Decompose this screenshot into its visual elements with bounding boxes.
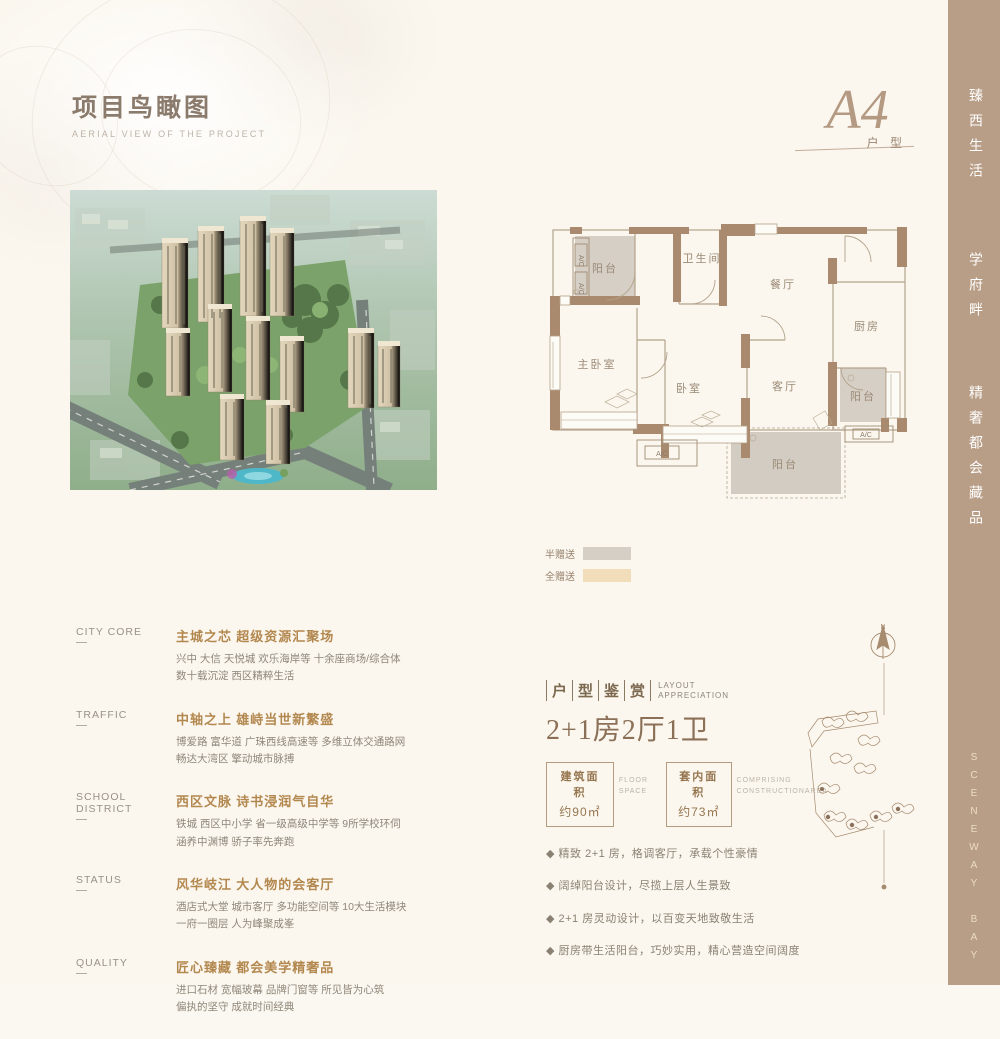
unit-type-emblem: A4 户 型: [795, 82, 920, 167]
room-label-bedroom: 卧室: [676, 381, 702, 395]
room-label-balcony-bottom: 阳台: [772, 457, 798, 471]
info-line: 数十载沉淀 西区精粹生活: [176, 668, 446, 685]
unit-code: A4: [795, 82, 920, 138]
floor-plan: 阳台 卫生间 餐厅 厨房 主卧室 卧室 客厅 阳台 阳台 A/C A/C A/C…: [545, 222, 913, 510]
room-label-dining: 餐厅: [770, 277, 796, 291]
layout-title-char: 型: [572, 680, 598, 701]
sidebar-slogan-3: 精奢都会藏品: [964, 385, 984, 535]
info-line: 进口石材 宽幅玻幕 品牌门窗等 所见皆为心筑: [176, 982, 446, 999]
room-label-living: 客厅: [772, 379, 798, 393]
info-line: 偏执的坚守 成就时间经典: [176, 999, 446, 1016]
area-label: 建筑面积: [556, 768, 604, 800]
ac-label-2: A/C: [577, 283, 584, 295]
layout-title-cn: 户 型 鉴 赏: [546, 680, 651, 701]
layout-title-char: 鉴: [598, 680, 624, 701]
ac-label-1: A/C: [577, 255, 584, 267]
area-label: 套内面积: [676, 768, 722, 800]
info-label: QUALITY: [76, 957, 128, 969]
sidebar-brand-name: SCENEWAY BAY: [969, 752, 980, 968]
site-plan-drawing: N: [788, 615, 933, 910]
area-value: 约73㎡: [676, 803, 722, 820]
info-line: 博爱路 富华道 广珠西线高速等 多维立体交通路网: [176, 734, 446, 751]
legend-label-half: 半赠送: [545, 546, 575, 561]
legend-swatch-full: [583, 569, 631, 582]
room-label-master-bedroom: 主卧室: [578, 357, 617, 371]
info-label: CITY CORE: [76, 626, 142, 638]
info-row-school: SCHOOL DISTRICT 西区文脉 诗书浸润气自华 铁城 西区中小学 省一…: [76, 791, 446, 851]
legend-item-half: 半赠送: [545, 546, 631, 561]
info-label: TRAFFIC: [76, 709, 127, 721]
plan-legend: 半赠送 全赠送: [545, 546, 631, 590]
sidebar-slogan-1: 臻西生活: [964, 88, 984, 188]
brochure-page: 项目鸟瞰图 AERIAL VIEW OF THE PROJECT A4 户 型: [0, 0, 1000, 985]
room-label-balcony-top: 阳台: [592, 261, 618, 275]
info-label: SCHOOL DISTRICT: [76, 791, 132, 815]
selling-points-list: CITY CORE 主城之芯 超级资源汇聚场 兴中 大信 天悦城 欢乐海岸等 十…: [76, 626, 446, 1039]
unit-code-label: 户 型: [867, 134, 906, 151]
info-line: 涵养中渊博 骄子率先奔跑: [176, 834, 446, 851]
page-title: 项目鸟瞰图: [72, 88, 266, 124]
info-heading: 西区文脉 诗书浸润气自华: [176, 791, 446, 810]
area-value: 约90㎡: [556, 803, 604, 820]
feature-bullet: ◆ 精致 2+1 房，格调客厅，承载个性豪情: [546, 847, 758, 862]
layout-title-en: LAYOUT APPRECIATION: [658, 680, 729, 701]
area-floor-space: 建筑面积 约90㎡ FLOORSPACE: [546, 762, 648, 827]
page-header: 项目鸟瞰图 AERIAL VIEW OF THE PROJECT: [72, 88, 266, 139]
info-row-traffic: TRAFFIC 中轴之上 雄峙当世新繁盛 博爱路 富华道 广珠西线高速等 多维立…: [76, 709, 446, 769]
info-row-quality: QUALITY 匠心臻藏 都会美学精奢品 进口石材 宽幅玻幕 品牌门窗等 所见皆…: [76, 957, 446, 1017]
feature-bullet: ◆ 厨房带生活阳台，巧妙实用，精心营造空间阔度: [546, 944, 800, 959]
info-row-city-core: CITY CORE 主城之芯 超级资源汇聚场 兴中 大信 天悦城 欢乐海岸等 十…: [76, 626, 446, 686]
info-heading: 匠心臻藏 都会美学精奢品: [176, 957, 446, 976]
info-line: 一府一圈层 人为峰聚成峯: [176, 916, 446, 933]
info-label: STATUS: [76, 874, 122, 886]
legend-label-full: 全赠送: [545, 568, 575, 583]
info-line: 兴中 大信 天悦城 欢乐海岸等 十余座商场/综合体: [176, 651, 446, 668]
floor-plan-drawing: 阳台 卫生间 餐厅 厨房 主卧室 卧室 客厅 阳台 阳台 A/C A/C A/C…: [545, 222, 913, 510]
ac-label-4: A/C: [860, 432, 872, 439]
compass-north-label: N: [880, 624, 885, 631]
info-line: 酒店式大堂 城市客厅 多功能空间等 10大生活模块: [176, 899, 446, 916]
site-plan-sketch: N: [788, 615, 933, 910]
aerial-illustration: [70, 190, 437, 490]
room-label-balcony-right: 阳台: [850, 389, 876, 403]
legend-item-full: 全赠送: [545, 568, 631, 583]
room-label-kitchen: 厨房: [854, 320, 880, 333]
room-label-bathroom: 卫生间: [683, 251, 722, 265]
right-brand-sidebar: 臻西生活 学府畔 精奢都会藏品 SCENEWAY BAY: [948, 0, 1000, 985]
layout-title-char: 赏: [624, 680, 651, 701]
feature-bullet: ◆ 阔绰阳台设计，尽揽上层人生景致: [546, 879, 731, 894]
sidebar-slogan-2: 学府畔: [964, 252, 984, 327]
info-heading: 主城之芯 超级资源汇聚场: [176, 626, 446, 645]
info-line: 铁城 西区中小学 省一级高级中学等 9所学校环伺: [176, 816, 446, 833]
ac-label-3: A/C: [656, 451, 668, 458]
info-heading: 风华岐江 大人物的会客厅: [176, 874, 446, 893]
page-subtitle: AERIAL VIEW OF THE PROJECT: [72, 129, 266, 139]
info-row-status: STATUS 风华岐江 大人物的会客厅 酒店式大堂 城市客厅 多功能空间等 10…: [76, 874, 446, 934]
info-heading: 中轴之上 雄峙当世新繁盛: [176, 709, 446, 728]
layout-title-char: 户: [546, 680, 572, 701]
feature-bullet: ◆ 2+1 房灵动设计，以百变天地致敬生活: [546, 912, 755, 927]
aerial-photo: [70, 190, 437, 490]
info-line: 畅达大湾区 擎动城市脉搏: [176, 751, 446, 768]
legend-swatch-half: [583, 547, 631, 560]
